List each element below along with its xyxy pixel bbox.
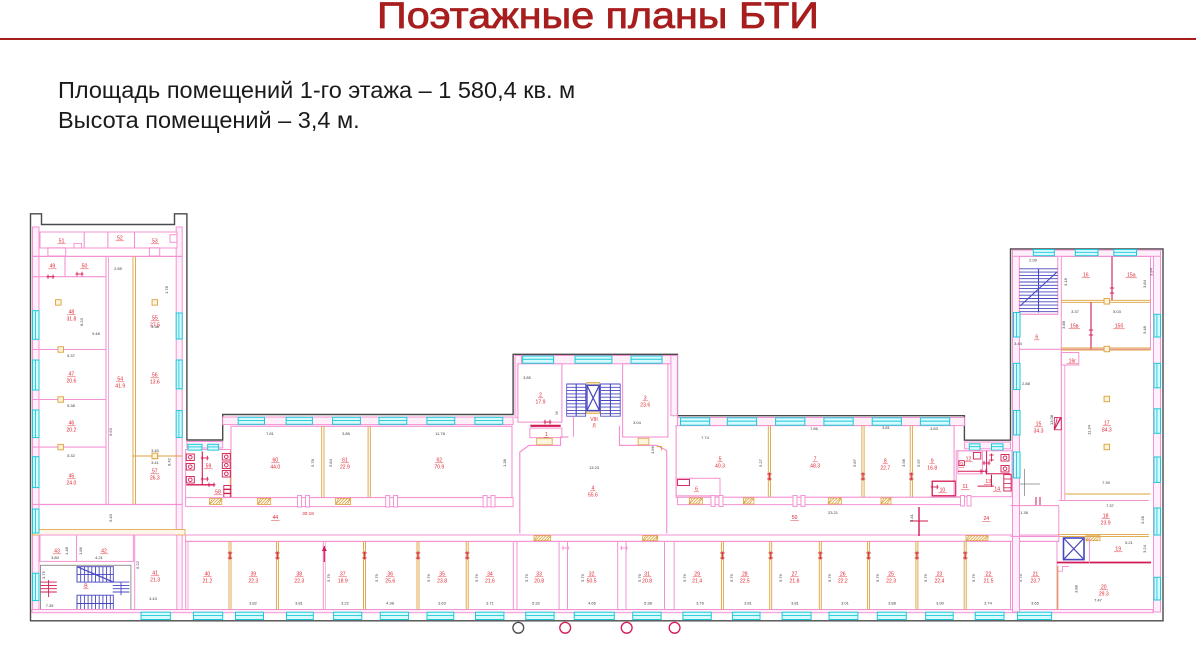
svg-text:3.75: 3.75 [41,570,46,579]
svg-text:5.79: 5.79 [778,573,783,582]
svg-text:5.79: 5.79 [580,573,585,582]
svg-text:22.3: 22.3 [248,579,258,585]
svg-text:3.81: 3.81 [791,601,800,606]
svg-text:5.32: 5.32 [67,453,76,458]
svg-text:40.3: 40.3 [715,464,725,470]
svg-text:3.43: 3.43 [149,596,158,601]
svg-text:2.99: 2.99 [1029,258,1038,263]
svg-text:3.38: 3.38 [151,324,160,329]
svg-text:18.9: 18.9 [338,579,348,585]
svg-text:13.6: 13.6 [150,380,160,386]
svg-text:21.6: 21.6 [485,579,495,585]
svg-text:17.9: 17.9 [536,400,546,406]
svg-text:21.3: 21.3 [150,578,160,584]
svg-text:3.88: 3.88 [1074,584,1079,593]
svg-text:2.85: 2.85 [114,266,123,271]
svg-text:44.0: 44.0 [270,465,280,471]
svg-text:Л: Л [592,424,595,430]
svg-text:3.22: 3.22 [341,601,350,606]
svg-text:III: III [554,411,559,414]
svg-text:5.03: 5.03 [1113,309,1122,314]
svg-text:5.79: 5.79 [729,573,734,582]
svg-text:5.43: 5.43 [108,513,113,522]
svg-text:7.35: 7.35 [46,603,55,608]
svg-text:3.71: 3.71 [486,601,495,606]
svg-text:5.37: 5.37 [67,353,76,358]
svg-text:3.76: 3.76 [696,601,705,606]
svg-text:4.66: 4.66 [650,445,655,454]
svg-text:3.28: 3.28 [1140,515,1145,524]
svg-text:5.84: 5.84 [328,458,333,467]
svg-text:21.5: 21.5 [984,579,994,585]
svg-text:5.79: 5.79 [326,573,331,582]
svg-text:3.83: 3.83 [930,426,939,431]
svg-text:11.78: 11.78 [435,431,445,436]
svg-text:22.5: 22.5 [740,579,750,585]
svg-text:5.79: 5.79 [682,573,687,582]
svg-text:8.42: 8.42 [167,457,172,466]
svg-text:5.97: 5.97 [916,458,921,467]
svg-text:5.79: 5.79 [474,573,479,582]
svg-text:23.7: 23.7 [1030,579,1040,585]
svg-text:22.4: 22.4 [934,579,944,585]
svg-text:3.90: 3.90 [936,601,945,606]
svg-text:5.79: 5.79 [374,573,379,582]
svg-text:6.22: 6.22 [135,560,140,569]
svg-text:13.08: 13.08 [1049,414,1054,425]
svg-text:5.32: 5.32 [532,601,541,606]
svg-text:70.9: 70.9 [434,465,444,471]
svg-text:23.6: 23.6 [640,403,650,409]
svg-text:5.87: 5.87 [852,458,857,467]
svg-text:23.21: 23.21 [828,510,839,515]
svg-text:3.98: 3.98 [901,458,906,467]
svg-text:21.8: 21.8 [790,579,800,585]
svg-text:5.79: 5.79 [524,573,529,582]
svg-text:3.84: 3.84 [1149,267,1154,276]
svg-text:2.88: 2.88 [1022,381,1031,386]
svg-text:30.18: 30.18 [302,511,314,516]
svg-text:22.3: 22.3 [886,579,896,585]
svg-text:1.38: 1.38 [502,458,507,467]
svg-text:22.9: 22.9 [340,465,350,471]
svg-text:3.24: 3.24 [1142,544,1147,553]
svg-text:31.8: 31.8 [66,317,76,323]
svg-text:3.85: 3.85 [342,431,351,436]
svg-text:5.78: 5.78 [310,458,315,467]
svg-text:5.41: 5.41 [909,513,914,522]
svg-text:7.81: 7.81 [266,431,275,436]
svg-text:5.38: 5.38 [67,403,76,408]
svg-text:7.47: 7.47 [1094,598,1103,603]
svg-text:16.8: 16.8 [927,466,937,472]
svg-text:4.21: 4.21 [95,555,104,560]
svg-text:34.3: 34.3 [1034,429,1044,435]
svg-text:11.34: 11.34 [1087,424,1092,434]
svg-text:5.79: 5.79 [923,573,928,582]
svg-text:3.40: 3.40 [151,448,160,453]
svg-text:13.23: 13.23 [589,465,600,470]
svg-text:25.6: 25.6 [385,579,395,585]
svg-text:41.9: 41.9 [115,384,125,390]
svg-text:7.74: 7.74 [701,435,710,440]
svg-text:3.65: 3.65 [1031,601,1040,606]
svg-text:7.39: 7.39 [1102,480,1111,485]
svg-text:5.79: 5.79 [875,573,880,582]
svg-text:5.79: 5.79 [637,573,642,582]
svg-text:4.38: 4.38 [386,601,395,606]
svg-text:20.8: 20.8 [534,579,544,585]
svg-text:3.37: 3.37 [1071,309,1080,314]
svg-text:7.37: 7.37 [1106,503,1115,508]
svg-text:3.88: 3.88 [888,601,897,606]
svg-text:8.23: 8.23 [79,317,84,326]
svg-text:5.27: 5.27 [758,458,763,467]
svg-text:3.18: 3.18 [1063,277,1068,286]
svg-text:20.2: 20.2 [66,428,76,434]
svg-text:48.3: 48.3 [810,464,820,470]
svg-text:5.38: 5.38 [644,601,653,606]
svg-text:3.04: 3.04 [633,420,642,425]
svg-text:3.44: 3.44 [1014,341,1023,346]
svg-text:4.66: 4.66 [588,601,597,606]
svg-text:5.79: 5.79 [971,573,976,582]
svg-text:3.48: 3.48 [1142,325,1147,334]
svg-text:3.74: 3.74 [984,601,993,606]
svg-text:5.79: 5.79 [827,573,832,582]
svg-text:22.7: 22.7 [880,466,890,472]
svg-text:5.21: 5.21 [1125,540,1134,545]
svg-text:3.63: 3.63 [438,601,447,606]
svg-text:3.01: 3.01 [841,601,850,606]
svg-text:20.6: 20.6 [66,379,76,385]
svg-text:3.85: 3.85 [523,375,532,380]
svg-text:5.79: 5.79 [426,573,431,582]
svg-text:23.9: 23.9 [1101,521,1111,527]
svg-text:3.81: 3.81 [882,425,891,430]
svg-text:1.86: 1.86 [78,546,83,555]
svg-text:9.63: 9.63 [108,427,113,436]
svg-text:50.5: 50.5 [587,579,597,585]
svg-text:3.81: 3.81 [295,601,304,606]
svg-text:21.4: 21.4 [692,579,702,585]
svg-text:24.0: 24.0 [66,481,76,487]
svg-text:1.48: 1.48 [64,546,69,555]
svg-text:3.82: 3.82 [249,601,258,606]
svg-text:3.84: 3.84 [1142,279,1147,288]
svg-text:22.3: 22.3 [294,579,304,585]
svg-text:22.2: 22.2 [838,579,848,585]
svg-text:3.80: 3.80 [51,555,60,560]
svg-text:7.86: 7.86 [810,426,819,431]
svg-text:26.3: 26.3 [150,476,160,482]
svg-text:84.3: 84.3 [1102,428,1112,434]
svg-text:9.48: 9.48 [92,331,101,336]
svg-text:3.88: 3.88 [1061,320,1066,329]
svg-text:21.2: 21.2 [202,579,212,585]
svg-text:20.8: 20.8 [642,579,652,585]
svg-text:1.78: 1.78 [164,285,169,294]
svg-text:VIII: VIII [590,417,598,423]
svg-text:23.8: 23.8 [437,579,447,585]
svg-text:3.81: 3.81 [744,601,753,606]
svg-text:3.41: 3.41 [151,460,160,465]
svg-text:55.6: 55.6 [588,493,598,499]
